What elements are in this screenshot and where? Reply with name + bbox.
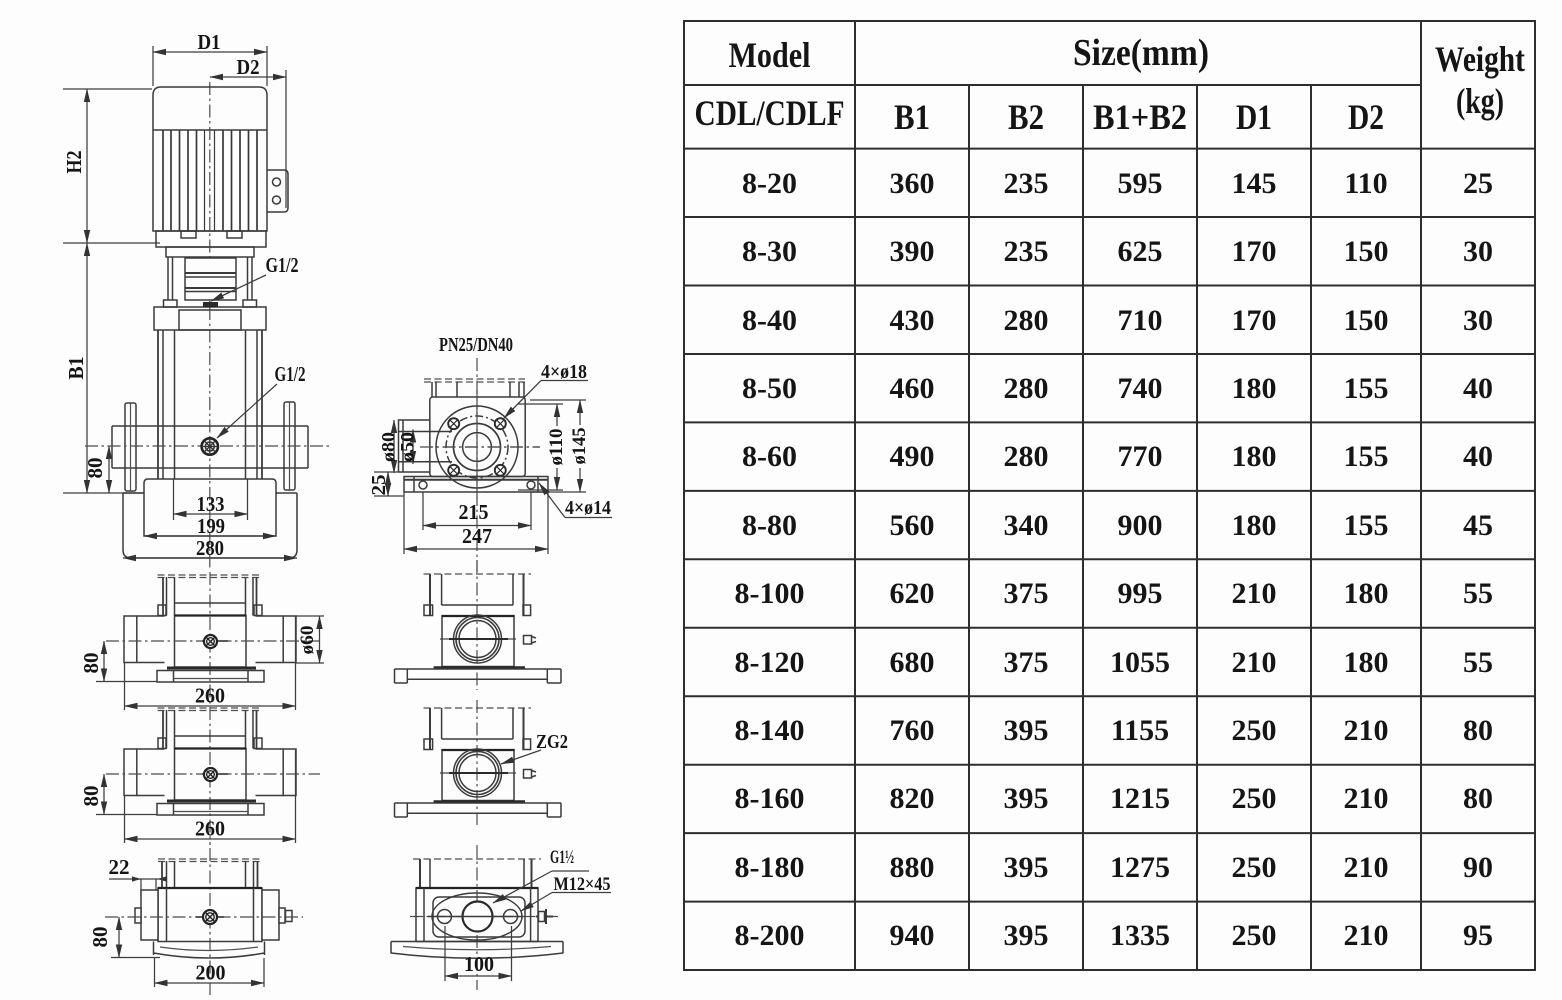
- svg-text:80: 80: [83, 458, 107, 479]
- svg-text:210: 210: [1344, 851, 1389, 884]
- svg-text:8-180: 8-180: [735, 851, 805, 884]
- svg-text:CDL/CDLF: CDL/CDLF: [695, 93, 845, 133]
- svg-text:80: 80: [79, 653, 103, 674]
- svg-text:210: 210: [1344, 714, 1389, 747]
- svg-text:155: 155: [1344, 440, 1389, 473]
- svg-text:235: 235: [1004, 235, 1049, 268]
- svg-text:260: 260: [195, 817, 225, 841]
- svg-text:8-30: 8-30: [742, 235, 797, 268]
- svg-text:8-20: 8-20: [742, 167, 797, 200]
- svg-text:25: 25: [1463, 167, 1493, 200]
- svg-text:280: 280: [1004, 304, 1049, 337]
- svg-text:25: 25: [368, 475, 390, 496]
- svg-text:210: 210: [1344, 782, 1389, 815]
- svg-text:8-80: 8-80: [742, 509, 797, 542]
- svg-text:55: 55: [1463, 577, 1493, 610]
- svg-text:150: 150: [1344, 235, 1389, 268]
- svg-text:8-60: 8-60: [742, 440, 797, 473]
- svg-text:395: 395: [1004, 919, 1049, 952]
- svg-text:460: 460: [890, 372, 935, 405]
- svg-text:Weight: Weight: [1435, 39, 1525, 79]
- svg-text:880: 880: [890, 851, 935, 884]
- svg-text:170: 170: [1232, 235, 1277, 268]
- svg-text:1215: 1215: [1110, 782, 1170, 815]
- svg-text:260: 260: [195, 684, 225, 708]
- svg-text:ø60: ø60: [297, 626, 318, 655]
- svg-text:H2: H2: [62, 151, 86, 174]
- svg-text:625: 625: [1118, 235, 1163, 268]
- svg-text:1155: 1155: [1111, 714, 1169, 747]
- svg-text:250: 250: [1232, 714, 1277, 747]
- svg-text:D2: D2: [1348, 97, 1384, 137]
- svg-text:900: 900: [1118, 509, 1163, 542]
- svg-text:8-160: 8-160: [735, 782, 805, 815]
- svg-text:375: 375: [1004, 646, 1049, 679]
- svg-text:55: 55: [1463, 646, 1493, 679]
- svg-text:100: 100: [464, 952, 494, 976]
- svg-text:G1/2: G1/2: [266, 253, 299, 277]
- svg-text:B2: B2: [1008, 97, 1044, 137]
- svg-text:ZG2: ZG2: [536, 731, 568, 753]
- svg-text:200: 200: [196, 961, 226, 985]
- svg-text:210: 210: [1232, 646, 1277, 679]
- svg-text:180: 180: [1344, 646, 1389, 679]
- svg-text:ø50: ø50: [398, 432, 419, 462]
- svg-text:280: 280: [196, 536, 224, 560]
- svg-text:B1+B2: B1+B2: [1093, 97, 1187, 137]
- svg-text:45: 45: [1463, 509, 1493, 542]
- svg-text:210: 210: [1232, 577, 1277, 610]
- svg-text:80: 80: [88, 927, 112, 948]
- svg-text:D1: D1: [198, 30, 221, 54]
- svg-text:ø110: ø110: [546, 429, 567, 466]
- svg-text:G1½: G1½: [550, 847, 574, 868]
- svg-text:1055: 1055: [1110, 646, 1170, 679]
- svg-text:740: 740: [1118, 372, 1163, 405]
- svg-text:8-40: 8-40: [742, 304, 797, 337]
- svg-text:280: 280: [1004, 440, 1049, 473]
- svg-text:620: 620: [890, 577, 935, 610]
- svg-text:145: 145: [1232, 167, 1277, 200]
- svg-text:180: 180: [1232, 440, 1277, 473]
- svg-text:D2: D2: [237, 55, 260, 79]
- svg-text:430: 430: [890, 304, 935, 337]
- svg-text:770: 770: [1118, 440, 1163, 473]
- svg-text:110: 110: [1344, 167, 1387, 200]
- svg-text:B1: B1: [64, 357, 88, 380]
- svg-text:180: 180: [1232, 372, 1277, 405]
- svg-text:560: 560: [890, 509, 935, 542]
- svg-text:710: 710: [1118, 304, 1163, 337]
- svg-text:M12×45: M12×45: [554, 874, 611, 895]
- svg-text:30: 30: [1463, 304, 1493, 337]
- svg-text:22: 22: [109, 855, 130, 879]
- svg-text:PN25/DN40: PN25/DN40: [439, 334, 513, 356]
- svg-text:395: 395: [1004, 851, 1049, 884]
- svg-text:B1: B1: [894, 97, 930, 137]
- svg-text:8-200: 8-200: [735, 919, 805, 952]
- svg-text:1275: 1275: [1110, 851, 1170, 884]
- svg-text:80: 80: [1463, 714, 1493, 747]
- svg-text:Model: Model: [729, 35, 811, 75]
- svg-text:490: 490: [890, 440, 935, 473]
- svg-text:250: 250: [1232, 782, 1277, 815]
- svg-text:250: 250: [1232, 851, 1277, 884]
- svg-text:8-100: 8-100: [735, 577, 805, 610]
- svg-text:250: 250: [1232, 919, 1277, 952]
- svg-text:4×ø18: 4×ø18: [541, 361, 587, 383]
- svg-text:80: 80: [1463, 782, 1493, 815]
- svg-text:235: 235: [1004, 167, 1049, 200]
- svg-text:247: 247: [462, 524, 492, 548]
- svg-text:180: 180: [1232, 509, 1277, 542]
- svg-text:150: 150: [1344, 304, 1389, 337]
- svg-text:4×ø14: 4×ø14: [565, 497, 611, 519]
- svg-text:180: 180: [1344, 577, 1389, 610]
- svg-text:8-120: 8-120: [735, 646, 805, 679]
- svg-text:8-140: 8-140: [735, 714, 805, 747]
- svg-text:215: 215: [459, 500, 489, 524]
- svg-text:390: 390: [890, 235, 935, 268]
- svg-text:210: 210: [1344, 919, 1389, 952]
- svg-text:199: 199: [197, 514, 225, 538]
- svg-text:133: 133: [197, 492, 225, 516]
- svg-text:995: 995: [1118, 577, 1163, 610]
- svg-text:940: 940: [890, 919, 935, 952]
- svg-text:155: 155: [1344, 372, 1389, 405]
- svg-text:(kg): (kg): [1456, 81, 1504, 121]
- svg-text:30: 30: [1463, 235, 1493, 268]
- svg-text:395: 395: [1004, 782, 1049, 815]
- svg-text:40: 40: [1463, 440, 1493, 473]
- svg-text:D1: D1: [1236, 97, 1272, 137]
- svg-text:375: 375: [1004, 577, 1049, 610]
- svg-text:40: 40: [1463, 372, 1493, 405]
- svg-text:1335: 1335: [1110, 919, 1170, 952]
- svg-text:820: 820: [890, 782, 935, 815]
- svg-text:ø80: ø80: [379, 432, 400, 462]
- svg-text:95: 95: [1463, 919, 1493, 952]
- svg-text:395: 395: [1004, 714, 1049, 747]
- svg-text:340: 340: [1004, 509, 1049, 542]
- svg-text:595: 595: [1118, 167, 1163, 200]
- svg-text:ø145: ø145: [569, 428, 590, 465]
- svg-text:8-50: 8-50: [742, 372, 797, 405]
- svg-text:G1/2: G1/2: [275, 362, 306, 386]
- svg-text:Size(mm): Size(mm): [1073, 32, 1209, 74]
- svg-text:80: 80: [79, 786, 103, 807]
- svg-text:760: 760: [890, 714, 935, 747]
- svg-text:360: 360: [890, 167, 935, 200]
- svg-text:155: 155: [1344, 509, 1389, 542]
- svg-text:170: 170: [1232, 304, 1277, 337]
- svg-text:90: 90: [1463, 851, 1493, 884]
- svg-text:280: 280: [1004, 372, 1049, 405]
- svg-text:680: 680: [890, 646, 935, 679]
